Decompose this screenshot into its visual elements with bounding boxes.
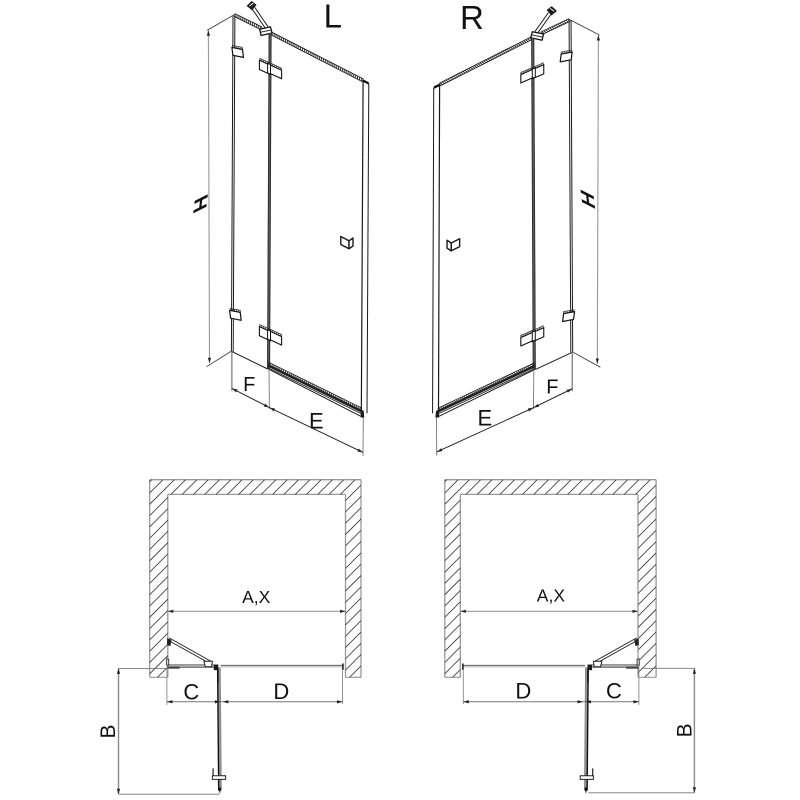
svg-text:C: C <box>183 680 199 705</box>
svg-text:D: D <box>515 679 531 704</box>
svg-text:D: D <box>273 679 289 704</box>
svg-text:A,X: A,X <box>537 586 566 606</box>
svg-text:E: E <box>477 406 492 431</box>
svg-text:H: H <box>189 191 212 217</box>
svg-text:H: H <box>577 186 600 212</box>
svg-text:E: E <box>309 409 324 434</box>
svg-text:F: F <box>546 377 558 399</box>
svg-text:R: R <box>460 0 484 36</box>
svg-text:A,X: A,X <box>242 587 271 607</box>
svg-text:B: B <box>673 723 696 737</box>
svg-text:B: B <box>97 724 120 738</box>
svg-text:F: F <box>243 374 255 396</box>
svg-text:C: C <box>606 679 622 704</box>
svg-text:L: L <box>324 0 342 35</box>
